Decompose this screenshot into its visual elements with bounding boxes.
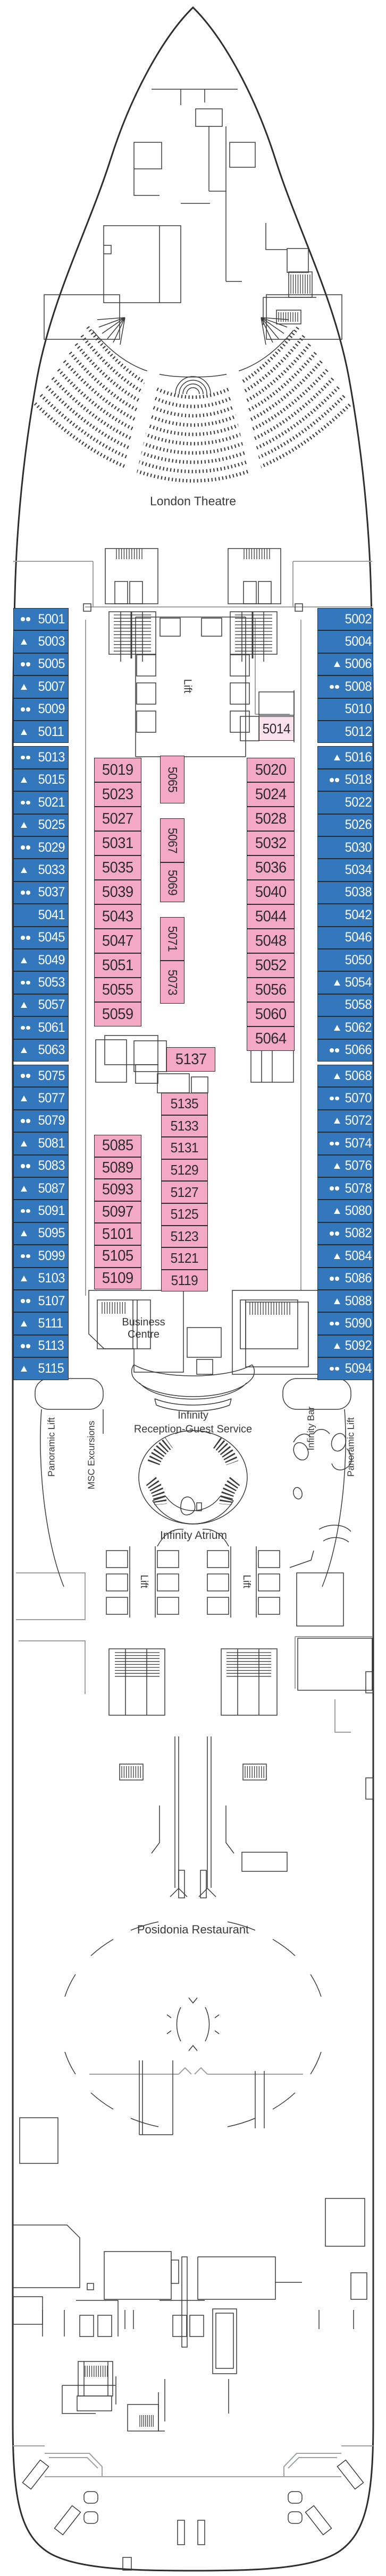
cabin-5090[interactable]: 5090 bbox=[317, 1312, 373, 1334]
cabin-number: 5032 bbox=[255, 835, 287, 852]
cabin-5063[interactable]: 5063 bbox=[13, 1039, 69, 1062]
cabin-number: 5113 bbox=[38, 1338, 64, 1354]
berth-triangle-icon bbox=[334, 1025, 340, 1031]
berth-triangle-icon bbox=[21, 1002, 37, 1008]
cabin-5073[interactable]: 5073 bbox=[160, 961, 184, 1004]
berth-dots-icon bbox=[21, 617, 37, 621]
cabin-number: 5060 bbox=[255, 1006, 287, 1023]
cabin-5129[interactable]: 5129 bbox=[161, 1159, 208, 1182]
berth-triangle-icon bbox=[21, 729, 37, 735]
cabin-number: 5082 bbox=[345, 1226, 372, 1241]
cabin-number: 5037 bbox=[38, 885, 65, 900]
cabin-number: 5071 bbox=[165, 926, 180, 952]
cabin-number: 5088 bbox=[345, 1294, 372, 1309]
cabin-number: 5080 bbox=[345, 1203, 372, 1219]
cabin-5030[interactable]: 5030 bbox=[317, 836, 373, 859]
cabin-5029[interactable]: 5029 bbox=[13, 836, 69, 859]
cabin-5054[interactable]: 5054 bbox=[317, 971, 373, 994]
cabin-5133[interactable]: 5133 bbox=[161, 1115, 208, 1137]
cabin-5013[interactable]: 5013 bbox=[13, 746, 69, 768]
reception-guest-service-label: Reception-Guest Service bbox=[134, 1424, 252, 1436]
cabin-number: 5063 bbox=[38, 1042, 65, 1058]
cabin-5043[interactable]: 5043 bbox=[94, 904, 141, 929]
berth-dots-icon bbox=[330, 1186, 340, 1191]
cabin-5121[interactable]: 5121 bbox=[161, 1247, 208, 1270]
cabin-number: 5031 bbox=[102, 835, 133, 852]
cabin-5021[interactable]: 5021 bbox=[13, 791, 69, 814]
infinity-label: Infinity bbox=[178, 1410, 208, 1422]
cabin-number: 5033 bbox=[38, 862, 65, 878]
cabin-number: 5073 bbox=[165, 969, 180, 995]
cabin-5071[interactable]: 5071 bbox=[160, 917, 184, 961]
cabin-number: 5001 bbox=[38, 612, 65, 627]
cabin-number: 5029 bbox=[38, 840, 65, 855]
cabin-number: 5103 bbox=[38, 1271, 65, 1286]
berth-dots-icon bbox=[21, 1299, 37, 1303]
cabin-number: 5050 bbox=[345, 953, 372, 968]
cabin-5064[interactable]: 5064 bbox=[247, 1026, 295, 1051]
cabin-5006[interactable]: 5006 bbox=[317, 653, 373, 675]
cabin-5044[interactable]: 5044 bbox=[247, 904, 295, 929]
cabin-number: 5046 bbox=[345, 930, 372, 945]
panoramic-lift-label-port: Panoramic Lift bbox=[46, 1417, 57, 1477]
cabin-5097[interactable]: 5097 bbox=[94, 1201, 141, 1223]
cabin-5010[interactable]: 5010 bbox=[317, 698, 373, 721]
business-centre-label: Business Centre bbox=[113, 1316, 174, 1341]
berth-triangle-icon bbox=[334, 980, 340, 986]
cabin-5135[interactable]: 5135 bbox=[161, 1093, 208, 1115]
cabin-number: 5021 bbox=[38, 795, 65, 810]
cabin-5086[interactable]: 5086 bbox=[317, 1268, 373, 1290]
cabin-5089[interactable]: 5089 bbox=[94, 1157, 141, 1179]
cabin-number: 5065 bbox=[165, 767, 180, 792]
cabin-5103[interactable]: 5103 bbox=[13, 1268, 69, 1290]
cabin-number: 5074 bbox=[345, 1136, 372, 1151]
cabin-number: 5075 bbox=[38, 1068, 65, 1084]
cabin-number: 5092 bbox=[345, 1338, 372, 1354]
cabin-number: 5038 bbox=[345, 885, 372, 900]
cabin-5049[interactable]: 5049 bbox=[13, 949, 69, 971]
berth-dots-icon bbox=[330, 1097, 340, 1101]
cabin-number: 5002 bbox=[345, 612, 372, 627]
cabin-number: 5006 bbox=[345, 656, 372, 672]
cabin-5026[interactable]: 5026 bbox=[317, 814, 373, 836]
cabin-5041[interactable]: 5041 bbox=[13, 904, 69, 926]
cabin-5039[interactable]: 5039 bbox=[94, 880, 141, 904]
cabin-number: 5023 bbox=[102, 786, 133, 803]
cabin-5046[interactable]: 5046 bbox=[317, 927, 373, 949]
cabin-5020[interactable]: 5020 bbox=[247, 758, 295, 782]
cabin-number: 5030 bbox=[345, 840, 372, 855]
cabin-5059[interactable]: 5059 bbox=[94, 1002, 141, 1026]
cabin-number: 5022 bbox=[345, 795, 372, 810]
lift-label-forward: Lift bbox=[181, 679, 194, 694]
cabin-5001[interactable]: 5001 bbox=[13, 608, 69, 630]
cabin-5040[interactable]: 5040 bbox=[247, 880, 295, 904]
cabin-number: 5068 bbox=[345, 1068, 372, 1084]
berth-triangle-icon bbox=[21, 1230, 37, 1236]
cabin-number: 5007 bbox=[38, 679, 65, 695]
cabin-number: 5028 bbox=[255, 810, 287, 828]
berth-triangle-icon bbox=[334, 1253, 340, 1259]
cabin-number: 5125 bbox=[171, 1206, 198, 1222]
cabin-5069[interactable]: 5069 bbox=[160, 862, 184, 902]
cabin-5076[interactable]: 5076 bbox=[317, 1155, 373, 1177]
cabin-number: 5042 bbox=[345, 908, 372, 923]
cabin-5057[interactable]: 5057 bbox=[13, 994, 69, 1016]
cabin-5119[interactable]: 5119 bbox=[161, 1270, 208, 1292]
berth-triangle-icon bbox=[21, 777, 37, 783]
cabin-5025[interactable]: 5025 bbox=[13, 814, 69, 836]
cabin-number: 5094 bbox=[345, 1361, 372, 1376]
cabin-number: 5084 bbox=[345, 1248, 372, 1264]
cabin-5028[interactable]: 5028 bbox=[247, 807, 295, 831]
cabin-number: 5087 bbox=[38, 1181, 65, 1196]
cabin-number: 5008 bbox=[345, 679, 372, 695]
cabin-number: 5099 bbox=[38, 1248, 65, 1264]
cabin-number: 5013 bbox=[38, 750, 65, 765]
cabin-number: 5036 bbox=[255, 859, 287, 877]
cabin-5050[interactable]: 5050 bbox=[317, 949, 373, 971]
cabin-number: 5019 bbox=[102, 761, 133, 779]
berth-dots-icon bbox=[21, 1026, 37, 1030]
cabin-5032[interactable]: 5032 bbox=[247, 831, 295, 855]
berth-triangle-icon bbox=[21, 1047, 37, 1053]
cabin-5022[interactable]: 5022 bbox=[317, 791, 373, 814]
cabin-5045[interactable]: 5045 bbox=[13, 927, 69, 949]
cabin-5113[interactable]: 5113 bbox=[13, 1335, 69, 1357]
cabin-5075[interactable]: 5075 bbox=[13, 1065, 69, 1087]
cabin-5042[interactable]: 5042 bbox=[317, 904, 373, 926]
cabin-number: 5066 bbox=[345, 1042, 372, 1058]
cabin-number: 5129 bbox=[171, 1162, 198, 1178]
cabin-5080[interactable]: 5080 bbox=[317, 1200, 373, 1222]
cabin-5067[interactable]: 5067 bbox=[160, 818, 184, 862]
cabin-number: 5109 bbox=[102, 1270, 133, 1287]
cabin-number: 5095 bbox=[38, 1226, 65, 1241]
berth-dots-icon bbox=[330, 1231, 340, 1236]
cabin-number: 5053 bbox=[38, 975, 65, 990]
berth-triangle-icon bbox=[21, 1141, 37, 1146]
berth-dots-icon bbox=[330, 1048, 340, 1052]
cabin-5082[interactable]: 5082 bbox=[317, 1222, 373, 1245]
cabin-5053[interactable]: 5053 bbox=[13, 971, 69, 994]
berth-triangle-icon bbox=[334, 755, 340, 760]
berth-dots-icon bbox=[21, 756, 37, 760]
cabin-number: 5059 bbox=[102, 1006, 133, 1023]
cabin-number: 5079 bbox=[38, 1113, 65, 1128]
infinity-bar-label: Infinity Bar bbox=[306, 1407, 317, 1451]
cabin-5051[interactable]: 5051 bbox=[94, 953, 141, 978]
cabin-number: 5057 bbox=[38, 997, 65, 1013]
cabin-number: 5010 bbox=[345, 701, 372, 717]
cabin-5007[interactable]: 5007 bbox=[13, 675, 69, 698]
berth-dots-icon bbox=[330, 1277, 340, 1281]
lift-label-mid-port: Lift bbox=[138, 1574, 149, 1588]
cabin-number: 5081 bbox=[38, 1136, 65, 1151]
berth-dots-icon bbox=[21, 1074, 37, 1078]
cabin-number: 5054 bbox=[345, 975, 372, 990]
cabin-5123[interactable]: 5123 bbox=[161, 1226, 208, 1248]
berth-dots-icon bbox=[330, 1322, 340, 1326]
cabin-5060[interactable]: 5060 bbox=[247, 1002, 295, 1026]
berth-triangle-icon bbox=[334, 1163, 340, 1169]
berth-dots-icon bbox=[330, 1367, 340, 1371]
cabin-5081[interactable]: 5081 bbox=[13, 1132, 69, 1154]
cabin-number: 5024 bbox=[255, 786, 287, 803]
cabin-number: 5085 bbox=[102, 1137, 133, 1154]
cabin-number: 5101 bbox=[102, 1226, 133, 1243]
cabin-5095[interactable]: 5095 bbox=[13, 1222, 69, 1245]
cabin-number: 5093 bbox=[102, 1181, 133, 1199]
cabin-number: 5011 bbox=[38, 724, 64, 740]
cabin-5012[interactable]: 5012 bbox=[317, 721, 373, 743]
berth-triangle-icon bbox=[21, 867, 37, 873]
cabin-number: 5090 bbox=[345, 1316, 372, 1331]
berth-triangle-icon bbox=[334, 661, 340, 667]
cabin-5068[interactable]: 5068 bbox=[317, 1065, 373, 1087]
cabin-number: 5005 bbox=[38, 656, 65, 672]
cabin-5038[interactable]: 5038 bbox=[317, 882, 373, 904]
cabin-5087[interactable]: 5087 bbox=[13, 1177, 69, 1200]
cabin-number: 5064 bbox=[255, 1030, 287, 1048]
cabin-5003[interactable]: 5003 bbox=[13, 630, 69, 653]
cabin-number: 5051 bbox=[102, 957, 133, 974]
cabin-5027[interactable]: 5027 bbox=[94, 807, 141, 831]
cabin-number: 5105 bbox=[102, 1247, 133, 1265]
cabin-number: 5048 bbox=[255, 932, 287, 950]
cabin-5015[interactable]: 5015 bbox=[13, 769, 69, 791]
infinity-atrium-label: Infinity Atrium bbox=[160, 1529, 227, 1542]
cabin-5131[interactable]: 5131 bbox=[161, 1137, 208, 1159]
cabin-number: 5040 bbox=[255, 884, 287, 901]
cabin-number: 5070 bbox=[345, 1091, 372, 1106]
london-theatre-label: London Theatre bbox=[150, 494, 236, 509]
cabin-5062[interactable]: 5062 bbox=[317, 1016, 373, 1039]
cabin-5077[interactable]: 5077 bbox=[13, 1087, 69, 1109]
cabin-number: 5127 bbox=[171, 1184, 198, 1201]
cabin-5094[interactable]: 5094 bbox=[317, 1357, 373, 1380]
cabin-5011[interactable]: 5011 bbox=[13, 721, 69, 743]
cabin-5037[interactable]: 5037 bbox=[13, 882, 69, 904]
cabin-number: 5020 bbox=[255, 761, 287, 779]
cabin-5099[interactable]: 5099 bbox=[13, 1245, 69, 1267]
berth-triangle-icon bbox=[334, 1118, 340, 1124]
cabin-5088[interactable]: 5088 bbox=[317, 1290, 373, 1312]
cabin-number: 5043 bbox=[102, 908, 133, 926]
cabin-5009[interactable]: 5009 bbox=[13, 698, 69, 721]
berth-dots-icon bbox=[21, 1119, 37, 1123]
cabin-5004[interactable]: 5004 bbox=[317, 630, 373, 653]
berth-triangle-icon bbox=[21, 684, 37, 690]
cabin-5016[interactable]: 5016 bbox=[317, 746, 373, 768]
berth-triangle-icon bbox=[21, 1276, 37, 1281]
cabin-5107[interactable]: 5107 bbox=[13, 1290, 69, 1312]
berth-dots-icon bbox=[21, 845, 37, 850]
cabin-number: 5025 bbox=[38, 817, 65, 833]
cabin-number: 5089 bbox=[102, 1159, 133, 1177]
cabin-number: 5026 bbox=[345, 817, 372, 833]
cabin-5055[interactable]: 5055 bbox=[94, 978, 141, 1002]
cabin-5078[interactable]: 5078 bbox=[317, 1177, 373, 1200]
cabin-number: 5083 bbox=[38, 1158, 65, 1174]
cabin-number: 5018 bbox=[345, 772, 372, 788]
cabin-5061[interactable]: 5061 bbox=[13, 1016, 69, 1039]
cabin-number: 5014 bbox=[263, 721, 290, 737]
cabin-number: 5012 bbox=[345, 724, 372, 740]
cabin-number: 5044 bbox=[255, 908, 287, 926]
cabin-number: 5121 bbox=[171, 1250, 198, 1266]
cabin-5048[interactable]: 5048 bbox=[247, 929, 295, 953]
berth-dots-icon bbox=[21, 1209, 37, 1213]
cabin-number: 5039 bbox=[102, 884, 133, 901]
cabin-number: 5115 bbox=[38, 1361, 64, 1376]
cabin-5047[interactable]: 5047 bbox=[94, 929, 141, 953]
berth-dots-icon bbox=[21, 662, 37, 666]
cabin-number: 5015 bbox=[38, 772, 65, 788]
berth-triangle-icon bbox=[334, 1208, 340, 1214]
cabin-number: 5004 bbox=[345, 634, 372, 649]
berth-dots-icon bbox=[21, 936, 37, 940]
cabin-5023[interactable]: 5023 bbox=[94, 782, 141, 807]
cabin-number: 5003 bbox=[38, 634, 65, 649]
cabin-5033[interactable]: 5033 bbox=[13, 859, 69, 881]
berth-dots-icon bbox=[21, 1254, 37, 1259]
berth-triangle-icon bbox=[21, 1096, 37, 1101]
cabin-number: 5137 bbox=[175, 1051, 207, 1068]
cabin-number: 5069 bbox=[165, 869, 180, 895]
berth-dots-icon bbox=[21, 707, 37, 712]
cabin-number: 5111 bbox=[38, 1316, 63, 1331]
cabin-5036[interactable]: 5036 bbox=[247, 855, 295, 880]
cabin-number: 5055 bbox=[102, 981, 133, 999]
cabin-number: 5123 bbox=[171, 1228, 198, 1245]
cabin-5008[interactable]: 5008 bbox=[317, 675, 373, 698]
cabin-number: 5034 bbox=[345, 862, 372, 878]
cabin-5127[interactable]: 5127 bbox=[161, 1181, 208, 1203]
cabin-5091[interactable]: 5091 bbox=[13, 1200, 69, 1222]
cabin-5066[interactable]: 5066 bbox=[317, 1039, 373, 1062]
msc-excursions-label: MSC Excursions bbox=[86, 1420, 97, 1489]
lift-label-mid-starboard: Lift bbox=[240, 1574, 252, 1588]
berth-dots-icon bbox=[21, 1344, 37, 1348]
berth-dots-icon bbox=[21, 981, 37, 985]
cabin-number: 5061 bbox=[38, 1020, 65, 1035]
berth-triangle-icon bbox=[21, 1366, 37, 1372]
cabin-5137[interactable]: 5137 bbox=[166, 1047, 215, 1072]
cabin-number: 5035 bbox=[102, 859, 133, 877]
cabin-number: 5052 bbox=[255, 957, 287, 974]
cabin-5111[interactable]: 5111 bbox=[13, 1312, 69, 1334]
berth-dots-icon bbox=[330, 1142, 340, 1146]
cabin-5034[interactable]: 5034 bbox=[317, 859, 373, 881]
cabin-5031[interactable]: 5031 bbox=[94, 831, 141, 855]
cabin-5024[interactable]: 5024 bbox=[247, 782, 295, 807]
cabin-number: 5041 bbox=[38, 908, 65, 923]
cabin-number: 5056 bbox=[255, 981, 287, 999]
deck-plan: 5001500350055007500950115013501550215025… bbox=[0, 0, 386, 2576]
cabin-number: 5077 bbox=[38, 1091, 65, 1106]
cabin-number: 5072 bbox=[345, 1113, 372, 1128]
cabin-number: 5016 bbox=[345, 750, 372, 765]
cabin-5079[interactable]: 5079 bbox=[13, 1110, 69, 1132]
cabin-number: 5047 bbox=[102, 932, 133, 950]
cabin-5072[interactable]: 5072 bbox=[317, 1110, 373, 1132]
cabin-number: 5135 bbox=[171, 1096, 198, 1112]
cabin-number: 5049 bbox=[38, 953, 65, 968]
cabin-number: 5078 bbox=[345, 1181, 372, 1196]
cabin-5101[interactable]: 5101 bbox=[94, 1223, 141, 1245]
cabin-number: 5027 bbox=[102, 810, 133, 828]
cabin-5115[interactable]: 5115 bbox=[13, 1357, 69, 1380]
berth-dots-icon bbox=[330, 685, 340, 689]
berth-triangle-icon bbox=[21, 1186, 37, 1192]
cabin-5005[interactable]: 5005 bbox=[13, 653, 69, 675]
cabin-number: 5058 bbox=[345, 997, 372, 1013]
cabin-5109[interactable]: 5109 bbox=[94, 1268, 141, 1290]
cabin-number: 5097 bbox=[102, 1203, 133, 1221]
cabin-number: 5062 bbox=[345, 1020, 372, 1035]
cabin-5092[interactable]: 5092 bbox=[317, 1335, 373, 1357]
berth-triangle-icon bbox=[21, 822, 37, 828]
cabin-5058[interactable]: 5058 bbox=[317, 994, 373, 1016]
cabin-5014[interactable]: 5014 bbox=[259, 716, 294, 741]
cabin-5018[interactable]: 5018 bbox=[317, 769, 373, 791]
cabin-5065[interactable]: 5065 bbox=[160, 756, 184, 803]
berth-dots-icon bbox=[330, 778, 340, 782]
cabin-5052[interactable]: 5052 bbox=[247, 953, 295, 978]
berth-dots-icon bbox=[21, 801, 37, 805]
berth-triangle-icon bbox=[334, 1073, 340, 1079]
cabin-5125[interactable]: 5125 bbox=[161, 1203, 208, 1226]
cabin-number: 5067 bbox=[165, 827, 180, 853]
cabin-number: 5086 bbox=[345, 1271, 372, 1286]
berth-triangle-icon bbox=[334, 1343, 340, 1349]
cabin-number: 5076 bbox=[345, 1158, 372, 1174]
cabin-5070[interactable]: 5070 bbox=[317, 1087, 373, 1109]
cabin-number: 5091 bbox=[38, 1203, 65, 1219]
cabin-5105[interactable]: 5105 bbox=[94, 1245, 141, 1268]
cabin-number: 5133 bbox=[171, 1118, 198, 1134]
berth-triangle-icon bbox=[334, 1298, 340, 1304]
berth-triangle-icon bbox=[21, 957, 37, 963]
cabin-5084[interactable]: 5084 bbox=[317, 1245, 373, 1267]
cabin-number: 5045 bbox=[38, 930, 65, 945]
berth-triangle-icon bbox=[21, 1321, 37, 1326]
cabin-5002[interactable]: 5002 bbox=[317, 608, 373, 630]
cabin-number: 5107 bbox=[38, 1294, 65, 1309]
cabin-5074[interactable]: 5074 bbox=[317, 1132, 373, 1154]
cabin-5019[interactable]: 5019 bbox=[94, 758, 141, 782]
panoramic-lift-label-starboard: Panoramic Lift bbox=[346, 1417, 357, 1477]
berth-dots-icon bbox=[21, 891, 37, 895]
cabin-number: 5119 bbox=[171, 1272, 198, 1289]
cabin-number: 5009 bbox=[38, 701, 65, 717]
cabin-5056[interactable]: 5056 bbox=[247, 978, 295, 1002]
cabin-5035[interactable]: 5035 bbox=[94, 855, 141, 880]
cabin-number: 5131 bbox=[171, 1140, 198, 1156]
cabin-5093[interactable]: 5093 bbox=[94, 1179, 141, 1201]
cabin-5083[interactable]: 5083 bbox=[13, 1155, 69, 1177]
berth-triangle-icon bbox=[21, 639, 37, 645]
posidonia-restaurant-label: Posidonia Restaurant bbox=[137, 1923, 249, 1937]
cabin-5085[interactable]: 5085 bbox=[94, 1135, 141, 1157]
berth-dots-icon bbox=[21, 1164, 37, 1168]
